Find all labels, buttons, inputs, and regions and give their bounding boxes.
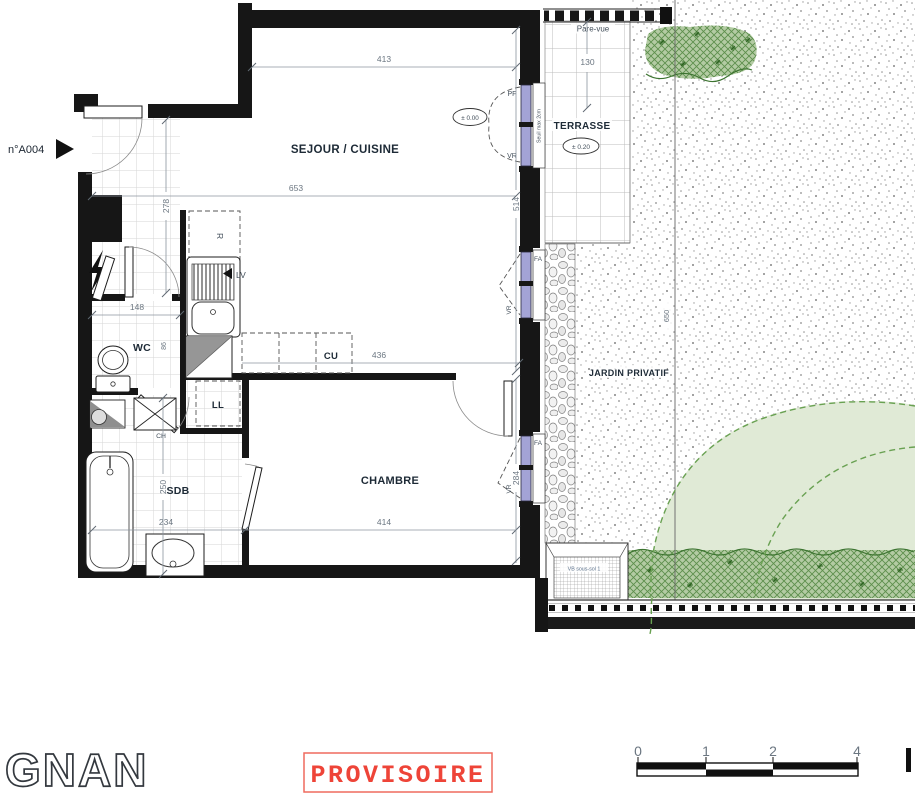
scale-1: 1 (702, 743, 710, 759)
chambre-label: CHAMBRE (361, 475, 419, 487)
basement-window-well: VB sous-sol 1 (546, 543, 628, 600)
corner-basin (90, 400, 125, 428)
provisional-stamp: PROVISOIRE (304, 753, 492, 792)
dim-234: 234 (159, 517, 173, 527)
dim-413: 413 (377, 54, 391, 64)
scale-4: 4 (853, 743, 861, 759)
dim-413-group: 413 (248, 54, 520, 71)
unit-label: n°A004 (8, 144, 44, 156)
dim-653: 653 (289, 183, 303, 193)
pf-vr-label: VR (507, 153, 517, 160)
counter-label: CU (324, 351, 338, 362)
dim-148: 148 (130, 302, 144, 312)
floor-plan-page: 650 VB sous-sol 1 JARDIN PRIVATIF (0, 0, 915, 800)
sink-bowl (192, 302, 234, 334)
water-heater-label: CH (156, 433, 166, 440)
dim-86: 86 (161, 342, 168, 350)
scale-bar: 0 1 2 4 (634, 743, 911, 776)
basement-window-label: VB sous-sol 1 (568, 567, 601, 573)
bedroom-window: FA VR (498, 434, 545, 503)
vanity-basin (146, 534, 204, 576)
fa-label: FA (534, 256, 543, 263)
sejour-label: SEJOUR / CUISINE (291, 144, 399, 156)
entrance-arrow-icon (56, 139, 74, 159)
scale-0: 0 (634, 743, 642, 759)
dim-436: 436 (372, 350, 386, 360)
technical-duct (186, 336, 232, 378)
kitchen-window-fa: FA VR (499, 250, 545, 320)
unit-tag: n°A004 (8, 139, 74, 159)
dim-414: 414 (377, 517, 391, 527)
dishwasher-label: LV (236, 270, 246, 280)
threshold-note: Seuil max 2cm (537, 109, 543, 143)
pare-vue-post (660, 7, 672, 24)
dim-130: 130 (580, 57, 594, 67)
terrace-level-marker: ± 0.20 (563, 138, 599, 154)
interior-level-marker: ± 0.00 (453, 109, 487, 126)
dim-436-group: 436 (242, 350, 523, 367)
terrace-level-value: ± 0.20 (572, 144, 590, 151)
fa-vr-label: VR (506, 305, 513, 314)
dim-284: 284 (511, 471, 521, 485)
stamp-text: PROVISOIRE (310, 761, 485, 790)
pare-vue-label: Pare-vue (577, 25, 610, 34)
bedroom-sdb-door (242, 464, 262, 530)
dim-650: 650 (662, 310, 671, 323)
terrace-tiles (545, 21, 630, 243)
edge-mark (906, 748, 911, 772)
dim-278: 278 (161, 199, 171, 213)
terrasse-label: TERRASSE (554, 121, 611, 132)
project-name: GNAN (5, 744, 148, 796)
bedroom-door (453, 381, 512, 436)
french-window-pf: PF VR Seuil max 2cm (489, 83, 545, 168)
sdb-label: SDB (166, 485, 189, 497)
kitchen-sink (187, 257, 240, 337)
hedge-top (645, 26, 757, 79)
interior-level-value: ± 0.00 (461, 115, 479, 122)
hedge-bottom (628, 550, 915, 598)
fridge-label: R (215, 233, 225, 239)
boundary-wall-band (537, 617, 915, 629)
bedroom-fa-label: FA (534, 440, 543, 447)
wc-label: WC (133, 342, 151, 354)
fridge-outline (189, 211, 240, 261)
sink-drainboard (192, 264, 234, 300)
apartment: PF VR Seuil max 2cm FA VR FA VR ± 0.00 (74, 3, 548, 632)
garden-fence (537, 600, 915, 629)
toilet (96, 346, 130, 392)
jardin-label: JARDIN PRIVATIF (589, 368, 669, 378)
dim-514: 514 (511, 197, 521, 211)
pebble-drainage-strip (545, 244, 575, 543)
kitchen-counter: CU (242, 333, 352, 373)
fence-posts (546, 605, 915, 611)
washing-machine-label: LL (212, 400, 224, 411)
floor-plan-drawing: 650 VB sous-sol 1 JARDIN PRIVATIF (0, 0, 915, 800)
bathtub (86, 452, 133, 572)
footer: GNAN PROVISOIRE 0 1 2 4 (5, 743, 911, 796)
scale-2: 2 (769, 743, 777, 759)
pf-label: PF (508, 91, 517, 98)
